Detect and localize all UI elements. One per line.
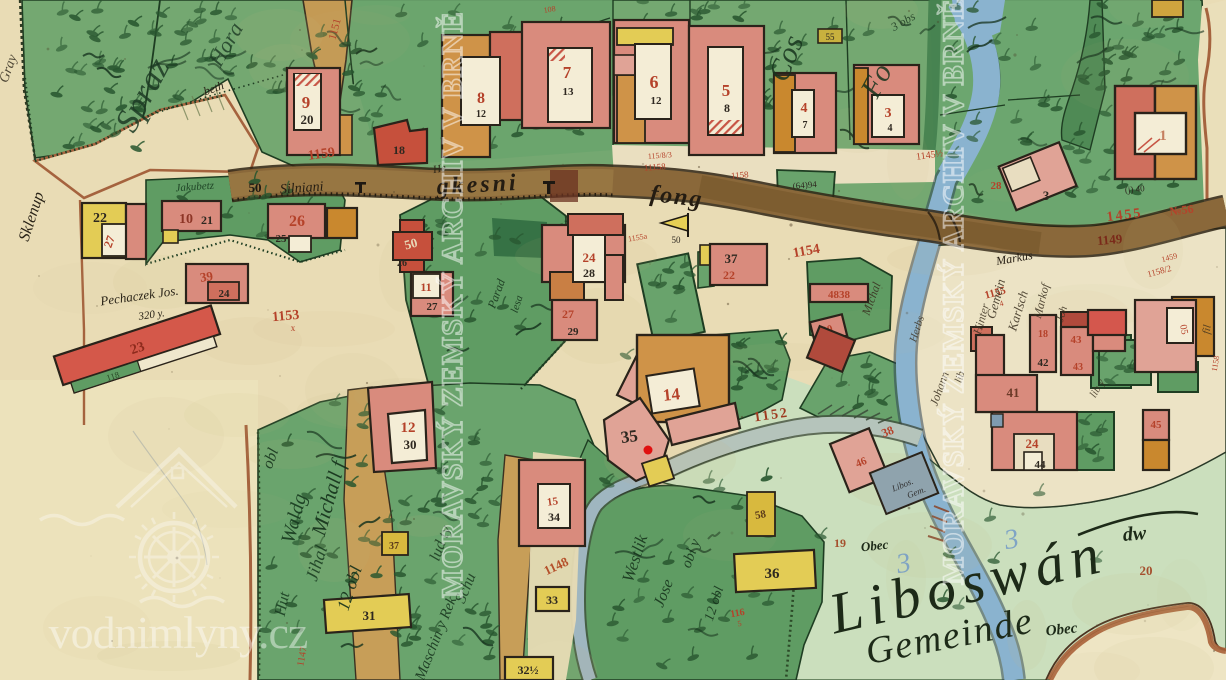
- svg-text:30: 30: [404, 437, 417, 452]
- svg-text:24: 24: [1026, 436, 1040, 451]
- svg-text:24: 24: [583, 250, 597, 265]
- svg-text:9: 9: [302, 93, 311, 112]
- svg-text:vodnimlyny.cz: vodnimlyny.cz: [49, 607, 308, 658]
- svg-text:27: 27: [562, 307, 574, 321]
- svg-text:13: 13: [563, 86, 575, 98]
- svg-text:31: 31: [363, 608, 376, 623]
- svg-text:4: 4: [801, 101, 808, 116]
- svg-text:x: x: [291, 323, 296, 333]
- svg-text:3: 3: [1043, 188, 1050, 203]
- svg-text:14: 14: [662, 384, 681, 405]
- svg-text:37: 37: [725, 251, 739, 266]
- svg-text:№56: №56: [1169, 202, 1195, 219]
- svg-text:39: 39: [199, 268, 214, 285]
- svg-text:Silniani: Silniani: [280, 179, 325, 197]
- svg-text:22: 22: [723, 268, 735, 282]
- svg-text:42: 42: [1038, 357, 1050, 369]
- svg-text:43: 43: [1073, 362, 1083, 373]
- svg-text:55: 55: [826, 32, 836, 42]
- svg-text:15: 15: [546, 495, 559, 508]
- svg-text:dw: dw: [1122, 522, 1148, 546]
- svg-text:6: 6: [650, 72, 659, 92]
- svg-text:28: 28: [991, 180, 1003, 192]
- svg-text:12: 12: [476, 109, 486, 120]
- svg-text:26: 26: [397, 258, 407, 269]
- svg-text:12: 12: [651, 95, 663, 107]
- svg-text:7: 7: [563, 63, 572, 82]
- svg-text:44: 44: [1035, 459, 1047, 471]
- svg-text:115/8/3: 115/8/3: [647, 150, 672, 161]
- svg-text:1158: 1158: [731, 169, 750, 181]
- svg-text:25: 25: [276, 233, 288, 245]
- svg-text:1: 1: [1159, 128, 1167, 144]
- svg-text:8: 8: [477, 90, 485, 107]
- svg-text:22: 22: [93, 211, 107, 226]
- svg-text:1149: 1149: [1096, 231, 1123, 248]
- svg-text:5: 5: [722, 81, 731, 100]
- svg-text:37: 37: [389, 541, 399, 552]
- svg-text:(64)94: (64)94: [792, 179, 817, 191]
- svg-text:18: 18: [1038, 329, 1048, 340]
- svg-text:36: 36: [765, 566, 781, 582]
- svg-text:24: 24: [219, 288, 231, 300]
- svg-text:20: 20: [301, 112, 314, 127]
- svg-text:19: 19: [834, 536, 846, 550]
- svg-text:50: 50: [672, 235, 682, 245]
- svg-text:10: 10: [179, 212, 193, 227]
- svg-text:MORAVSKÝ ZEMSKÝ ARCHIV V BRNĚ: MORAVSKÝ ZEMSKÝ ARCHIV V BRNĚ: [436, 11, 469, 598]
- svg-text:11: 11: [420, 280, 431, 294]
- svg-text:8: 8: [724, 101, 730, 115]
- svg-text:33: 33: [546, 593, 558, 607]
- svg-text:05: 05: [1177, 324, 1190, 336]
- svg-text:41: 41: [1007, 385, 1020, 400]
- svg-text:Obec: Obec: [860, 537, 889, 555]
- svg-text:32½: 32½: [518, 663, 539, 677]
- svg-text:4: 4: [888, 123, 893, 134]
- svg-text:45: 45: [1151, 419, 1163, 431]
- svg-text:3: 3: [885, 106, 892, 121]
- svg-text:26: 26: [289, 213, 305, 230]
- svg-text:50: 50: [249, 180, 262, 195]
- svg-text:7: 7: [803, 120, 808, 131]
- svg-text:20: 20: [1140, 563, 1153, 578]
- svg-text:28: 28: [583, 266, 595, 280]
- svg-text:18: 18: [393, 143, 405, 157]
- svg-text:21: 21: [201, 213, 213, 227]
- svg-text:34: 34: [548, 510, 560, 524]
- svg-text:MORAVSKÝ ZEMSKÝ ARCHIV V BRNĚ: MORAVSKÝ ZEMSKÝ ARCHIV V BRNĚ: [937, 0, 970, 585]
- svg-text:35: 35: [619, 426, 638, 447]
- svg-text:Obec: Obec: [1045, 620, 1078, 639]
- svg-text:(j) 40: (j) 40: [1124, 183, 1145, 195]
- svg-text:1153: 1153: [271, 308, 299, 325]
- svg-text:4838: 4838: [828, 289, 851, 301]
- svg-text:43: 43: [1071, 334, 1083, 346]
- svg-text:11158: 11158: [644, 161, 667, 173]
- svg-text:12: 12: [401, 420, 416, 436]
- svg-text:29: 29: [568, 326, 580, 338]
